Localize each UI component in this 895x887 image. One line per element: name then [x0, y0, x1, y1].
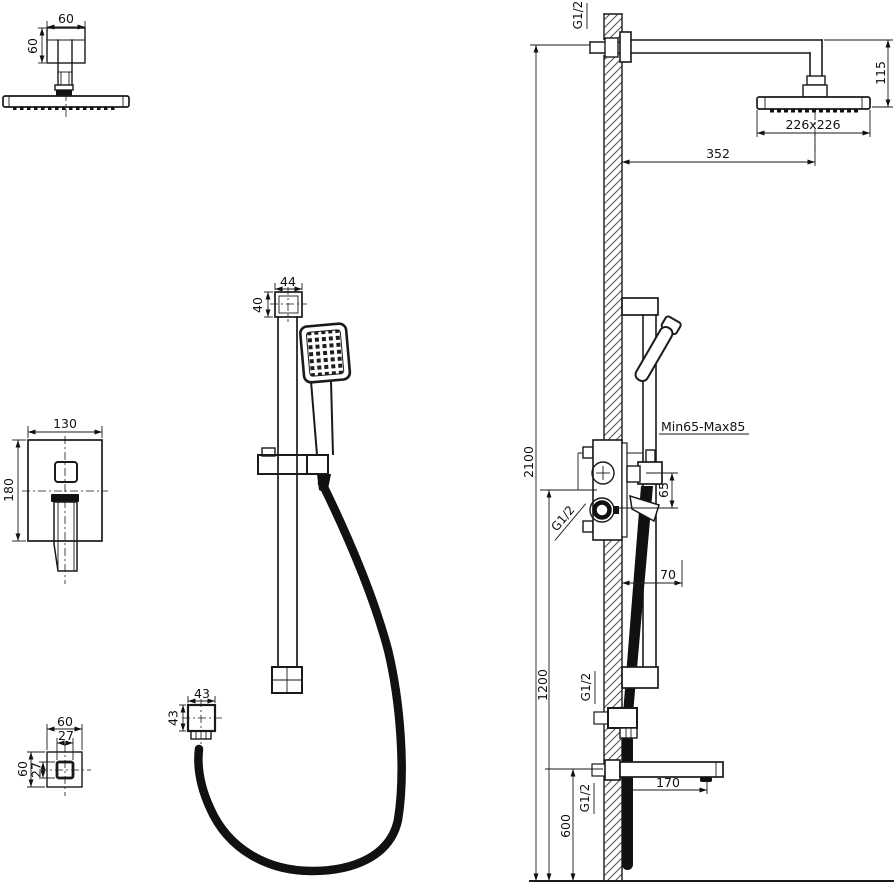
dim-head-size: 226x226: [785, 117, 840, 132]
concealed-mixer-front-view: 130 180: [1, 416, 108, 584]
dim-union-inner-height: 27: [29, 762, 44, 778]
dim-overhead-width: 60: [58, 11, 74, 26]
head-connector: [803, 85, 827, 97]
handle-pivot: [51, 494, 79, 502]
technical-drawing-page: 60 60 130 180 60 27 60: [0, 0, 895, 887]
wall-union-front-view: 60 27 60 27: [15, 714, 91, 796]
side-elevation-view: G1/2 2100 115 226x226 352 Min65-Max85: [521, 1, 893, 881]
shower-system-drawing: 60 60 130 180 60 27 60: [0, 0, 895, 887]
dim-union-inner-width: 27: [58, 728, 74, 743]
union-flange: [47, 752, 82, 787]
dim-spout-height: 600: [558, 814, 573, 838]
bar-bottom-bracket: [622, 667, 658, 688]
dim-hose-union-width: 43: [194, 686, 210, 701]
dim-bar-cap-height: 40: [250, 297, 265, 313]
rain-shower-head: [757, 97, 870, 109]
escutcheon-square: [47, 28, 85, 63]
dim-arm-reach: 352: [706, 146, 730, 161]
label-spout-thread: G1/2: [578, 784, 592, 813]
elevation-dimensions: G1/2 2100 115 226x226 352 Min65-Max85: [521, 1, 893, 881]
label-supply-thread: G1/2: [571, 1, 585, 30]
dim-handle-projection: 70: [660, 567, 676, 582]
arm-escutcheon: [620, 32, 631, 62]
valve-outlet-stub: [627, 466, 640, 482]
head-nut: [807, 76, 825, 85]
shower-hose: [198, 483, 401, 871]
dim-total-height: 2100: [521, 446, 536, 478]
dim-bar-cap-width: 44: [280, 274, 296, 289]
arm-collar: [55, 85, 73, 90]
shower-arm-assembly: [589, 32, 870, 152]
label-hose-outlet-thread: G1/2: [579, 673, 593, 702]
dim-head-drop: 115: [873, 61, 888, 85]
dim-union-outer-width: 60: [57, 714, 73, 729]
dim-hose-union-height: 43: [166, 710, 181, 726]
dim-overhead-height: 60: [25, 38, 40, 54]
spout-outlet: [700, 777, 712, 782]
diverter-button: [55, 462, 77, 482]
hand-shower-front-view: 44 40 43 43: [166, 274, 402, 871]
label-valve-depth-range: Min65-Max85: [661, 419, 745, 434]
valve-body: [593, 440, 622, 540]
dim-riser-height: 1200: [535, 669, 550, 701]
dim-spout-reach: 170: [656, 775, 680, 790]
valve-plate-edge: [622, 443, 627, 537]
dim-port-spacing: 65: [656, 482, 671, 498]
dim-mixer-height: 180: [1, 478, 16, 502]
label-valve-thread-group: G1/2: [543, 494, 585, 540]
hand-shower-head: [300, 323, 351, 383]
slider-bracket: [258, 455, 307, 474]
dim-mixer-width: 130: [53, 416, 77, 431]
overhead-shower-detail-view: 60 60: [3, 11, 129, 118]
spray-nozzles: [13, 107, 115, 110]
bar-top-bracket: [622, 298, 658, 315]
holder-knob-side: [646, 450, 655, 463]
supply-nut: [605, 38, 618, 57]
handle-holder: [307, 455, 328, 474]
hand-shower-side: [632, 315, 682, 384]
